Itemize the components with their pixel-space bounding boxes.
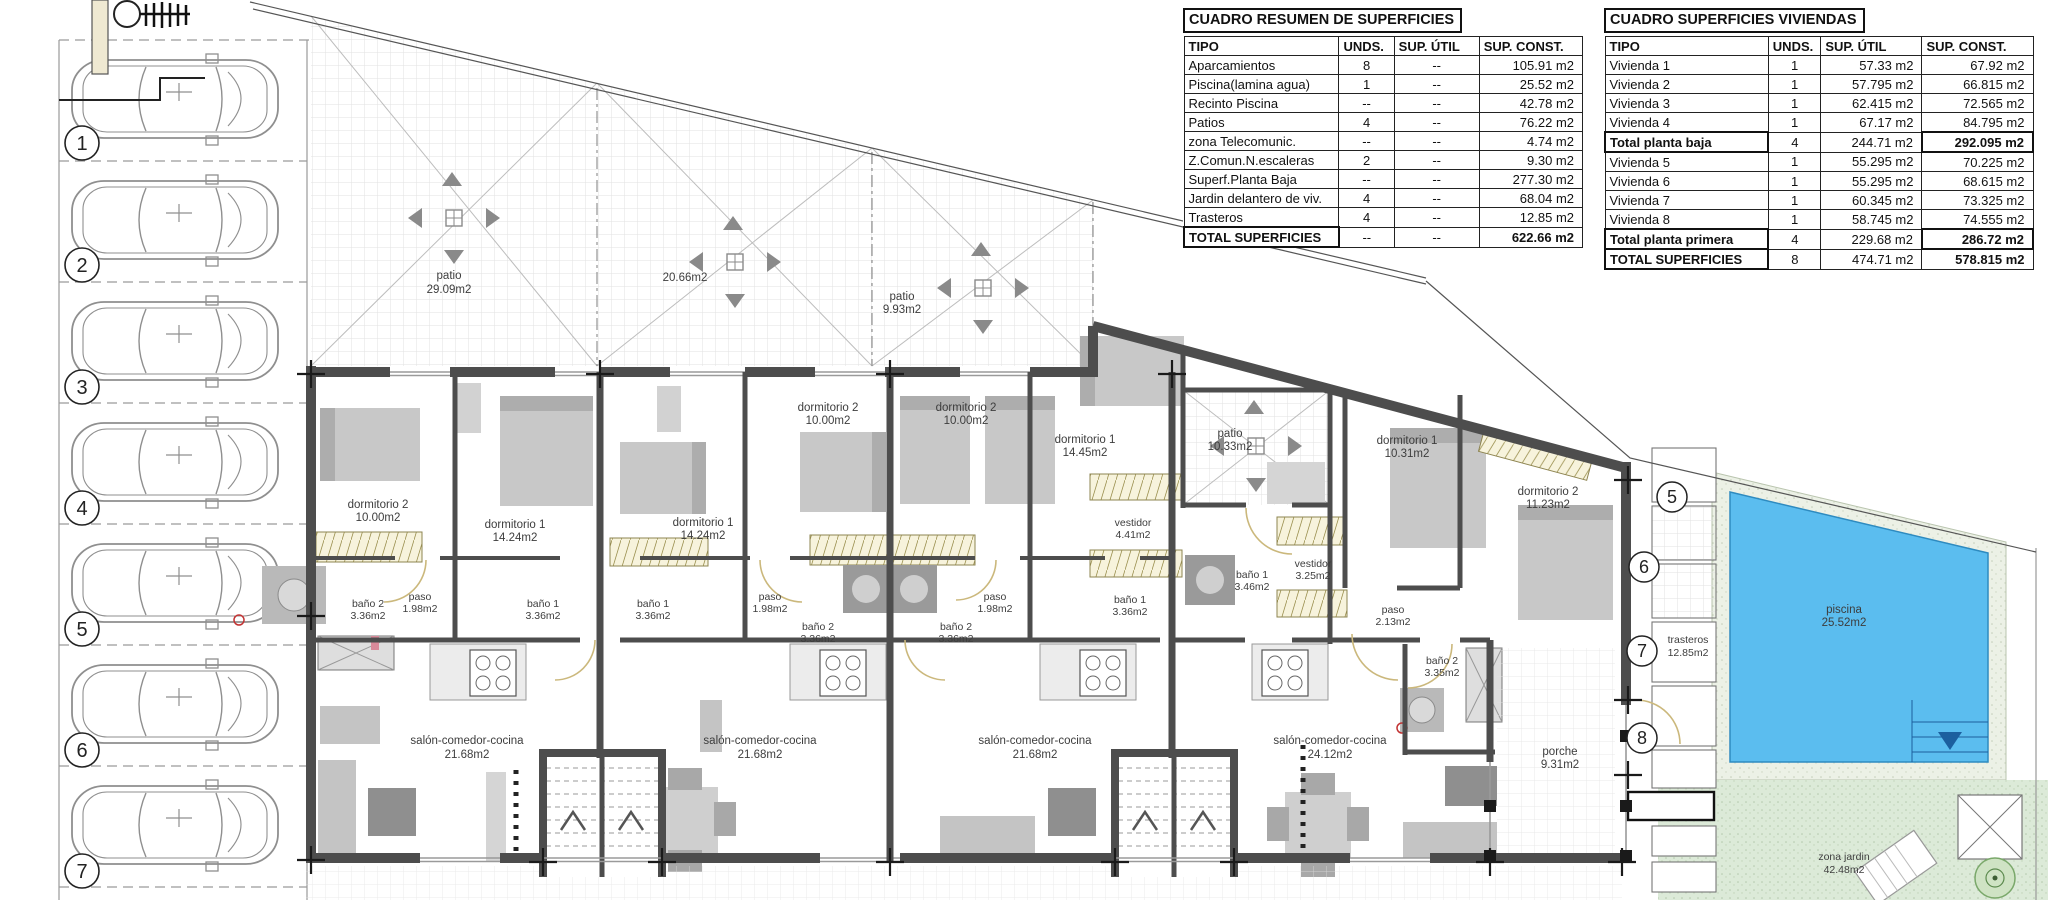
table-header-row: TIPO UNDS. SUP. ÚTIL SUP. CONST.: [1184, 37, 1583, 56]
table-row: Vivienda 6 1 55.295 m2 68.615 m2: [1605, 172, 2033, 191]
label-trasteros: trasteros: [1668, 634, 1709, 646]
label-salon: salón-comedor-cocina: [978, 735, 1092, 747]
svg-text:3.36m2: 3.36m2: [800, 633, 835, 645]
svg-text:1.98m2: 1.98m2: [402, 603, 437, 615]
svg-text:7: 7: [1637, 641, 1647, 661]
svg-text:14.45m2: 14.45m2: [1063, 447, 1108, 459]
label-salon: salón-comedor-cocina: [703, 735, 817, 747]
label-dorm: dormitorio 1: [485, 519, 546, 531]
label-vestidor: vestidor: [1115, 517, 1152, 529]
svg-text:21.68m2: 21.68m2: [1013, 749, 1058, 761]
svg-text:3.36m2: 3.36m2: [525, 610, 560, 622]
svg-text:10.33m2: 10.33m2: [1208, 441, 1253, 453]
svg-text:3.36m2: 3.36m2: [1112, 606, 1147, 618]
label-dorm: dormitorio 2: [936, 402, 997, 414]
label-salon: salón-comedor-cocina: [1273, 735, 1387, 747]
label-bano: baño 2: [1426, 655, 1458, 667]
svg-text:3.35m2: 3.35m2: [1424, 667, 1459, 679]
svg-text:10.00m2: 10.00m2: [806, 415, 851, 427]
dwellings-surface-table: CUADRO SUPERFICIES VIVIENDAS TIPO UNDS. …: [1604, 8, 2034, 270]
svg-text:3.36m2: 3.36m2: [350, 610, 385, 622]
svg-text:6: 6: [1639, 557, 1649, 577]
label-dorm: dormitorio 1: [673, 517, 734, 529]
svg-text:4: 4: [76, 498, 87, 520]
table-row: Jardin delantero de viv. 4 -- 68.04 m2: [1184, 189, 1583, 208]
label-dorm: dormitorio 1: [1055, 434, 1116, 446]
label-bano: baño 2: [940, 621, 972, 633]
label-paso: paso: [1382, 604, 1405, 616]
table-total-row: Total planta baja 4 244.71 m2 292.095 m2: [1605, 132, 2033, 152]
table-row: Vivienda 4 1 67.17 m2 84.795 m2: [1605, 113, 2033, 133]
table-row: Vivienda 1 1 57.33 m2 67.92 m2: [1605, 56, 2033, 75]
label-dorm: dormitorio 2: [348, 499, 409, 511]
front-walkway: [306, 866, 1622, 900]
svg-text:10.00m2: 10.00m2: [356, 512, 401, 524]
beds: [320, 336, 1613, 620]
svg-text:24.12m2: 24.12m2: [1308, 749, 1353, 761]
svg-text:10.31m2: 10.31m2: [1385, 448, 1430, 460]
label-dorm: dormitorio 1: [1377, 435, 1438, 447]
svg-text:3.36m2: 3.36m2: [938, 633, 973, 645]
svg-text:9.93m2: 9.93m2: [883, 304, 921, 316]
svg-text:11.23m2: 11.23m2: [1526, 499, 1570, 511]
svg-text:1.98m2: 1.98m2: [752, 603, 787, 615]
svg-text:3.25m2: 3.25m2: [1295, 570, 1330, 582]
table-row: Vivienda 5 1 55.295 m2 70.225 m2: [1605, 152, 2033, 172]
label-dorm: dormitorio 2: [1518, 486, 1579, 498]
svg-text:1.98m2: 1.98m2: [977, 603, 1012, 615]
svg-text:3.46m2: 3.46m2: [1234, 581, 1269, 593]
parking-area: [59, 40, 311, 900]
label-bano: baño 1: [527, 598, 559, 610]
label-dorm: dormitorio 2: [798, 402, 859, 414]
table-title: CUADRO SUPERFICIES VIVIENDAS: [1604, 8, 1865, 33]
table-row: Recinto Piscina -- -- 42.78 m2: [1184, 94, 1583, 113]
label-zona-jardin: zona jardin: [1818, 851, 1870, 863]
label-patio-1: patio: [437, 270, 462, 282]
svg-text:2: 2: [76, 255, 87, 277]
table-row: Vivienda 2 1 57.795 m2 66.815 m2: [1605, 75, 2033, 94]
svg-text:10.00m2: 10.00m2: [944, 415, 989, 427]
label-bano: baño 1: [1114, 594, 1146, 606]
label-bano: baño 1: [637, 598, 669, 610]
svg-text:42.48m2: 42.48m2: [1824, 864, 1865, 876]
label-paso: paso: [409, 591, 432, 603]
table-row: Trasteros 4 -- 12.85 m2: [1184, 208, 1583, 228]
table-row: Patios 4 -- 76.22 m2: [1184, 113, 1583, 132]
label-porche: porche: [1542, 746, 1577, 758]
svg-text:1: 1: [76, 133, 87, 155]
label-salon: salón-comedor-cocina: [410, 735, 524, 747]
table-total-row: Total planta primera 4 229.68 m2 286.72 …: [1605, 229, 2033, 249]
table-row: Vivienda 7 1 60.345 m2 73.325 m2: [1605, 191, 2033, 210]
label-patio-4: patio: [1218, 428, 1243, 440]
svg-text:21.68m2: 21.68m2: [738, 749, 783, 761]
svg-text:14.24m2: 14.24m2: [493, 532, 538, 544]
table-row: Z.Comun.N.escaleras 2 -- 9.30 m2: [1184, 151, 1583, 170]
svg-text:29.09m2: 29.09m2: [427, 284, 472, 296]
svg-text:7: 7: [76, 861, 87, 883]
parking-numbers: 1 2 3 4 5 6 7: [65, 126, 99, 888]
table-title: CUADRO RESUMEN DE SUPERFICIES: [1183, 8, 1462, 33]
svg-text:8: 8: [1637, 728, 1647, 748]
label-paso: paso: [984, 591, 1007, 603]
floor-plan-page: patio 29.09m2 20.66m2 patio 9.93m2 patio…: [0, 0, 2048, 900]
table-row: Vivienda 8 1 58.745 m2 74.555 m2: [1605, 210, 2033, 230]
svg-text:14.24m2: 14.24m2: [681, 530, 726, 542]
label-patio-2: 20.66m2: [663, 272, 708, 284]
label-piscina: piscina: [1826, 604, 1862, 616]
salon-furniture: [318, 700, 1497, 877]
svg-text:21.68m2: 21.68m2: [445, 749, 490, 761]
svg-text:25.52m2: 25.52m2: [1822, 617, 1867, 629]
table-header-row: TIPO UNDS. SUP. ÚTIL SUP. CONST.: [1605, 37, 2033, 56]
table-row: Piscina(lamina agua) 1 -- 25.52 m2: [1184, 75, 1583, 94]
svg-text:6: 6: [76, 740, 87, 762]
svg-text:5: 5: [76, 619, 87, 641]
label-paso: paso: [759, 591, 782, 603]
label-bano: baño 2: [802, 621, 834, 633]
label-patio-3: patio: [890, 291, 915, 303]
table-row: Superf.Planta Baja -- -- 277.30 m2: [1184, 170, 1583, 189]
table-row: Aparcamientos 8 -- 105.91 m2: [1184, 56, 1583, 75]
svg-text:4.41m2: 4.41m2: [1115, 529, 1150, 541]
svg-text:3.36m2: 3.36m2: [635, 610, 670, 622]
telecom-antenna-icon: [59, 0, 205, 100]
label-bano: baño 2: [352, 598, 384, 610]
svg-text:5: 5: [1667, 487, 1677, 507]
surface-summary-table: CUADRO RESUMEN DE SUPERFICIES TIPO UNDS.…: [1183, 8, 1583, 248]
label-vestidor: vestidor: [1295, 558, 1332, 570]
svg-text:9.31m2: 9.31m2: [1541, 759, 1579, 771]
tree-icon: [1975, 858, 2015, 898]
svg-text:2.13m2: 2.13m2: [1375, 616, 1410, 628]
kitchens: [430, 644, 1328, 700]
table-grand-total-row: TOTAL SUPERFICIES 8 474.71 m2 578.815 m2: [1605, 249, 2033, 269]
table-row: Vivienda 3 1 62.415 m2 72.565 m2: [1605, 94, 2033, 113]
table-row: zona Telecomunic. -- -- 4.74 m2: [1184, 132, 1583, 151]
svg-text:3: 3: [76, 377, 87, 399]
table-total-row: TOTAL SUPERFICIES -- -- 622.66 m2: [1184, 227, 1583, 247]
svg-text:12.85m2: 12.85m2: [1668, 647, 1709, 659]
label-bano: baño 1: [1236, 569, 1268, 581]
